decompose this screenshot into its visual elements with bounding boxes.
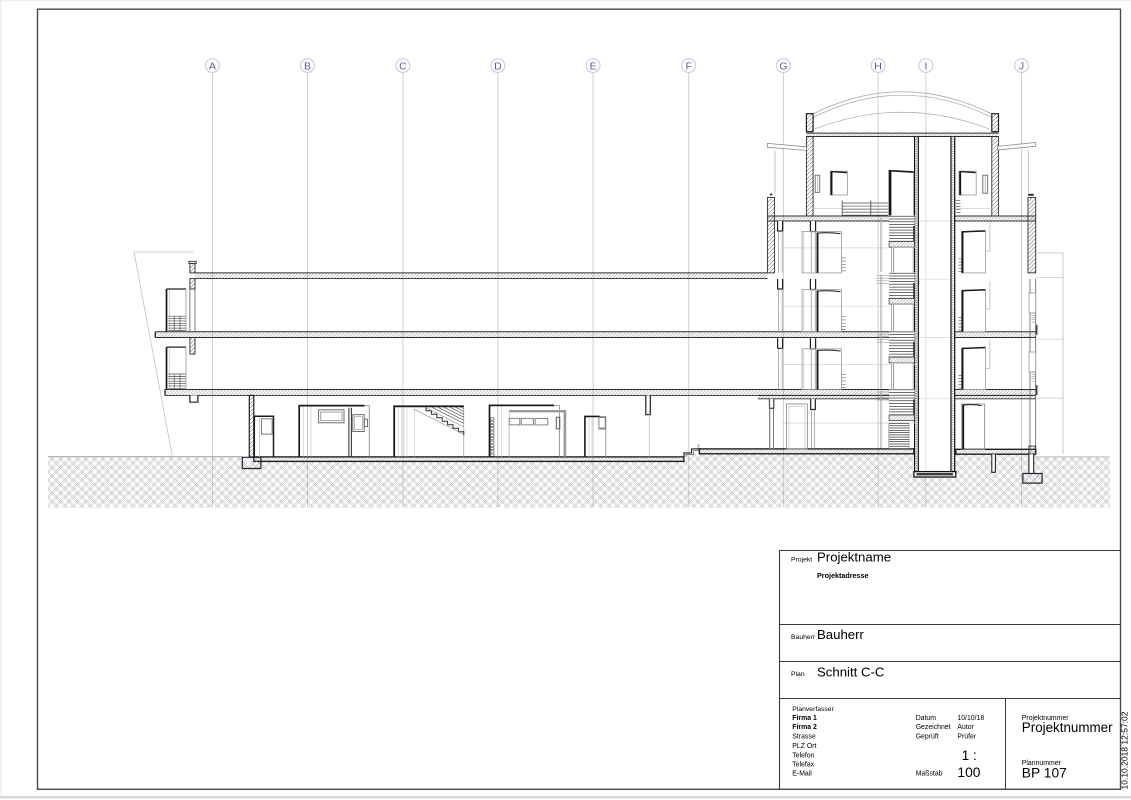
- svg-text:Gezeichnet: Gezeichnet: [916, 724, 951, 731]
- svg-text:Prüfer: Prüfer: [957, 734, 976, 741]
- svg-text:10.10.2018 12:57:02: 10.10.2018 12:57:02: [1119, 711, 1129, 789]
- svg-text:Telefax: Telefax: [792, 761, 814, 768]
- svg-text:Projektname: Projektname: [817, 549, 891, 564]
- svg-text:Projekt: Projekt: [791, 557, 812, 564]
- svg-text:BP 107: BP 107: [1022, 766, 1067, 781]
- svg-text:Firma 2: Firma 2: [792, 724, 817, 731]
- svg-text:J: J: [1019, 60, 1024, 72]
- svg-text:PLZ Ort: PLZ Ort: [792, 743, 816, 750]
- svg-text:A: A: [209, 60, 216, 72]
- svg-text:Bauherr: Bauherr: [817, 627, 865, 642]
- svg-text:E-Mail: E-Mail: [792, 771, 812, 778]
- svg-text:1 :: 1 :: [962, 748, 977, 763]
- svg-text:Planverfasser: Planverfasser: [792, 706, 834, 713]
- svg-text:Projektnummer: Projektnummer: [1022, 720, 1113, 735]
- svg-text:Strasse: Strasse: [792, 734, 816, 741]
- svg-text:B: B: [304, 60, 311, 72]
- svg-text:E: E: [590, 60, 597, 72]
- svg-text:Datum: Datum: [916, 715, 937, 722]
- svg-text:Geprüft: Geprüft: [916, 734, 939, 741]
- svg-text:Plan: Plan: [791, 671, 805, 678]
- svg-text:Projektadresse: Projektadresse: [817, 571, 869, 580]
- svg-text:G: G: [779, 60, 787, 72]
- svg-text:Autor: Autor: [957, 724, 974, 731]
- svg-text:Telefon: Telefon: [792, 752, 814, 759]
- svg-text:Firma 1: Firma 1: [792, 715, 817, 722]
- svg-text:Bauherr: Bauherr: [791, 634, 816, 641]
- svg-text:C: C: [399, 60, 407, 72]
- svg-text:F: F: [685, 60, 691, 72]
- svg-text:10/10/18: 10/10/18: [957, 715, 984, 722]
- svg-text:Schnitt C-C: Schnitt C-C: [817, 664, 885, 679]
- svg-text:I: I: [924, 60, 927, 72]
- svg-text:Maßstab: Maßstab: [916, 771, 943, 778]
- svg-text:D: D: [494, 60, 502, 72]
- svg-text:100: 100: [957, 765, 980, 780]
- svg-text:H: H: [874, 60, 882, 72]
